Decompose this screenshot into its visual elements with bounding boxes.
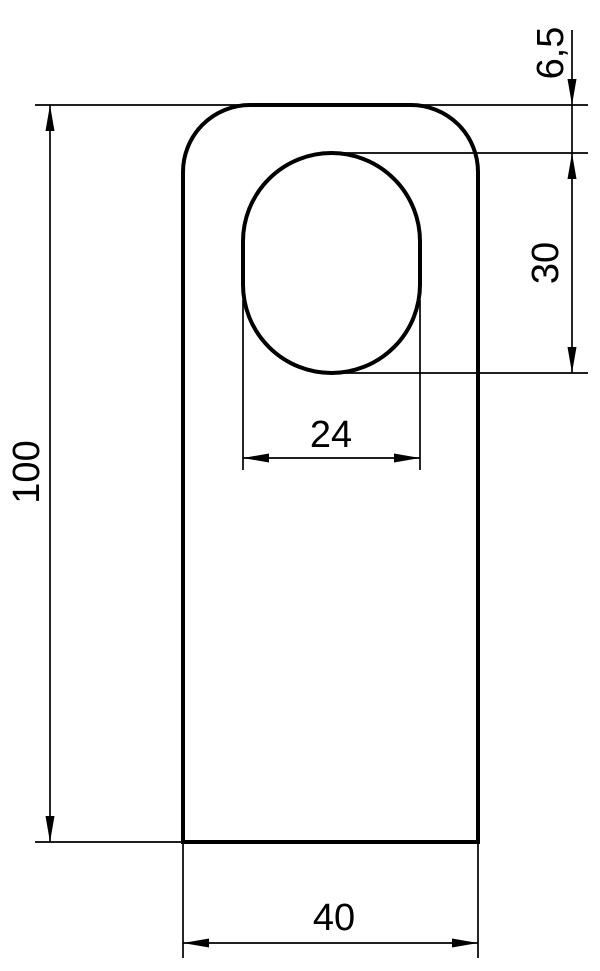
dim-label-hole-width: 24 bbox=[310, 416, 352, 454]
hole-outline bbox=[243, 153, 420, 373]
arrowhead-total-width-right bbox=[452, 939, 478, 948]
drawing-geometry bbox=[0, 0, 600, 971]
dim-label-hole-height: 30 bbox=[527, 242, 565, 284]
dim-label-hole-top-offset: 6,5 bbox=[532, 27, 570, 80]
arrowhead-total-height-top bbox=[46, 105, 55, 131]
arrowhead-offset-top bbox=[568, 79, 577, 105]
arrowhead-total-width-left bbox=[183, 939, 209, 948]
part-outline bbox=[183, 105, 478, 842]
technical-drawing-canvas: 100 6,5 30 24 40 bbox=[0, 0, 600, 971]
dim-label-total-height: 100 bbox=[8, 440, 46, 503]
arrowhead-hole-width-left bbox=[243, 454, 269, 463]
arrowhead-hole-height-bottom bbox=[568, 347, 577, 373]
dim-label-total-width: 40 bbox=[313, 899, 355, 937]
arrowhead-hole-height-top bbox=[568, 153, 577, 179]
arrowhead-total-height-bottom bbox=[46, 816, 55, 842]
arrowhead-hole-width-right bbox=[394, 454, 420, 463]
